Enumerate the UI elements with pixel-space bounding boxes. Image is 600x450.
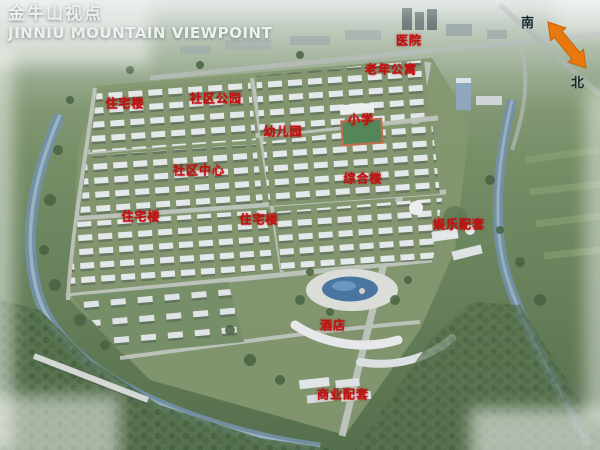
map-label-residential-west: 住宅楼	[121, 208, 160, 225]
map-label-kindergarten: 幼儿园	[263, 123, 302, 140]
map-label-hospital: 医院	[396, 32, 422, 49]
map-label-community-center: 社区中心	[173, 162, 225, 179]
map-label-primary-school: 小学	[348, 111, 374, 128]
tonal-overlay	[0, 0, 600, 450]
map-label-mixed-use-building: 综合楼	[343, 170, 382, 187]
title-chinese: 金牛山视点	[8, 5, 272, 25]
compass-north-label: 北	[571, 72, 584, 91]
map-label-hotel: 酒店	[320, 317, 346, 334]
map-label-senior-apartments: 老年公寓	[365, 61, 417, 78]
map-label-commercial-facilities: 商业配套	[317, 386, 369, 403]
map-label-residential-central: 住宅楼	[239, 211, 278, 228]
aerial-rendering	[0, 0, 600, 450]
title-english: JINNIU MOUNTAIN VIEWPOINT	[8, 25, 272, 42]
page-title: 金牛山视点 JINNIU MOUNTAIN VIEWPOINT	[8, 5, 272, 42]
map-label-residential-northwest: 住宅楼	[105, 95, 144, 112]
map-label-entertainment-facilities: 娱乐配套	[433, 216, 485, 233]
compass-south-label: 南	[521, 12, 534, 31]
aerial-viewpoint-screenshot: 金牛山视点 JINNIU MOUNTAIN VIEWPOINT 南 北 医院 老…	[0, 0, 600, 450]
map-label-community-park: 社区公园	[190, 90, 242, 107]
